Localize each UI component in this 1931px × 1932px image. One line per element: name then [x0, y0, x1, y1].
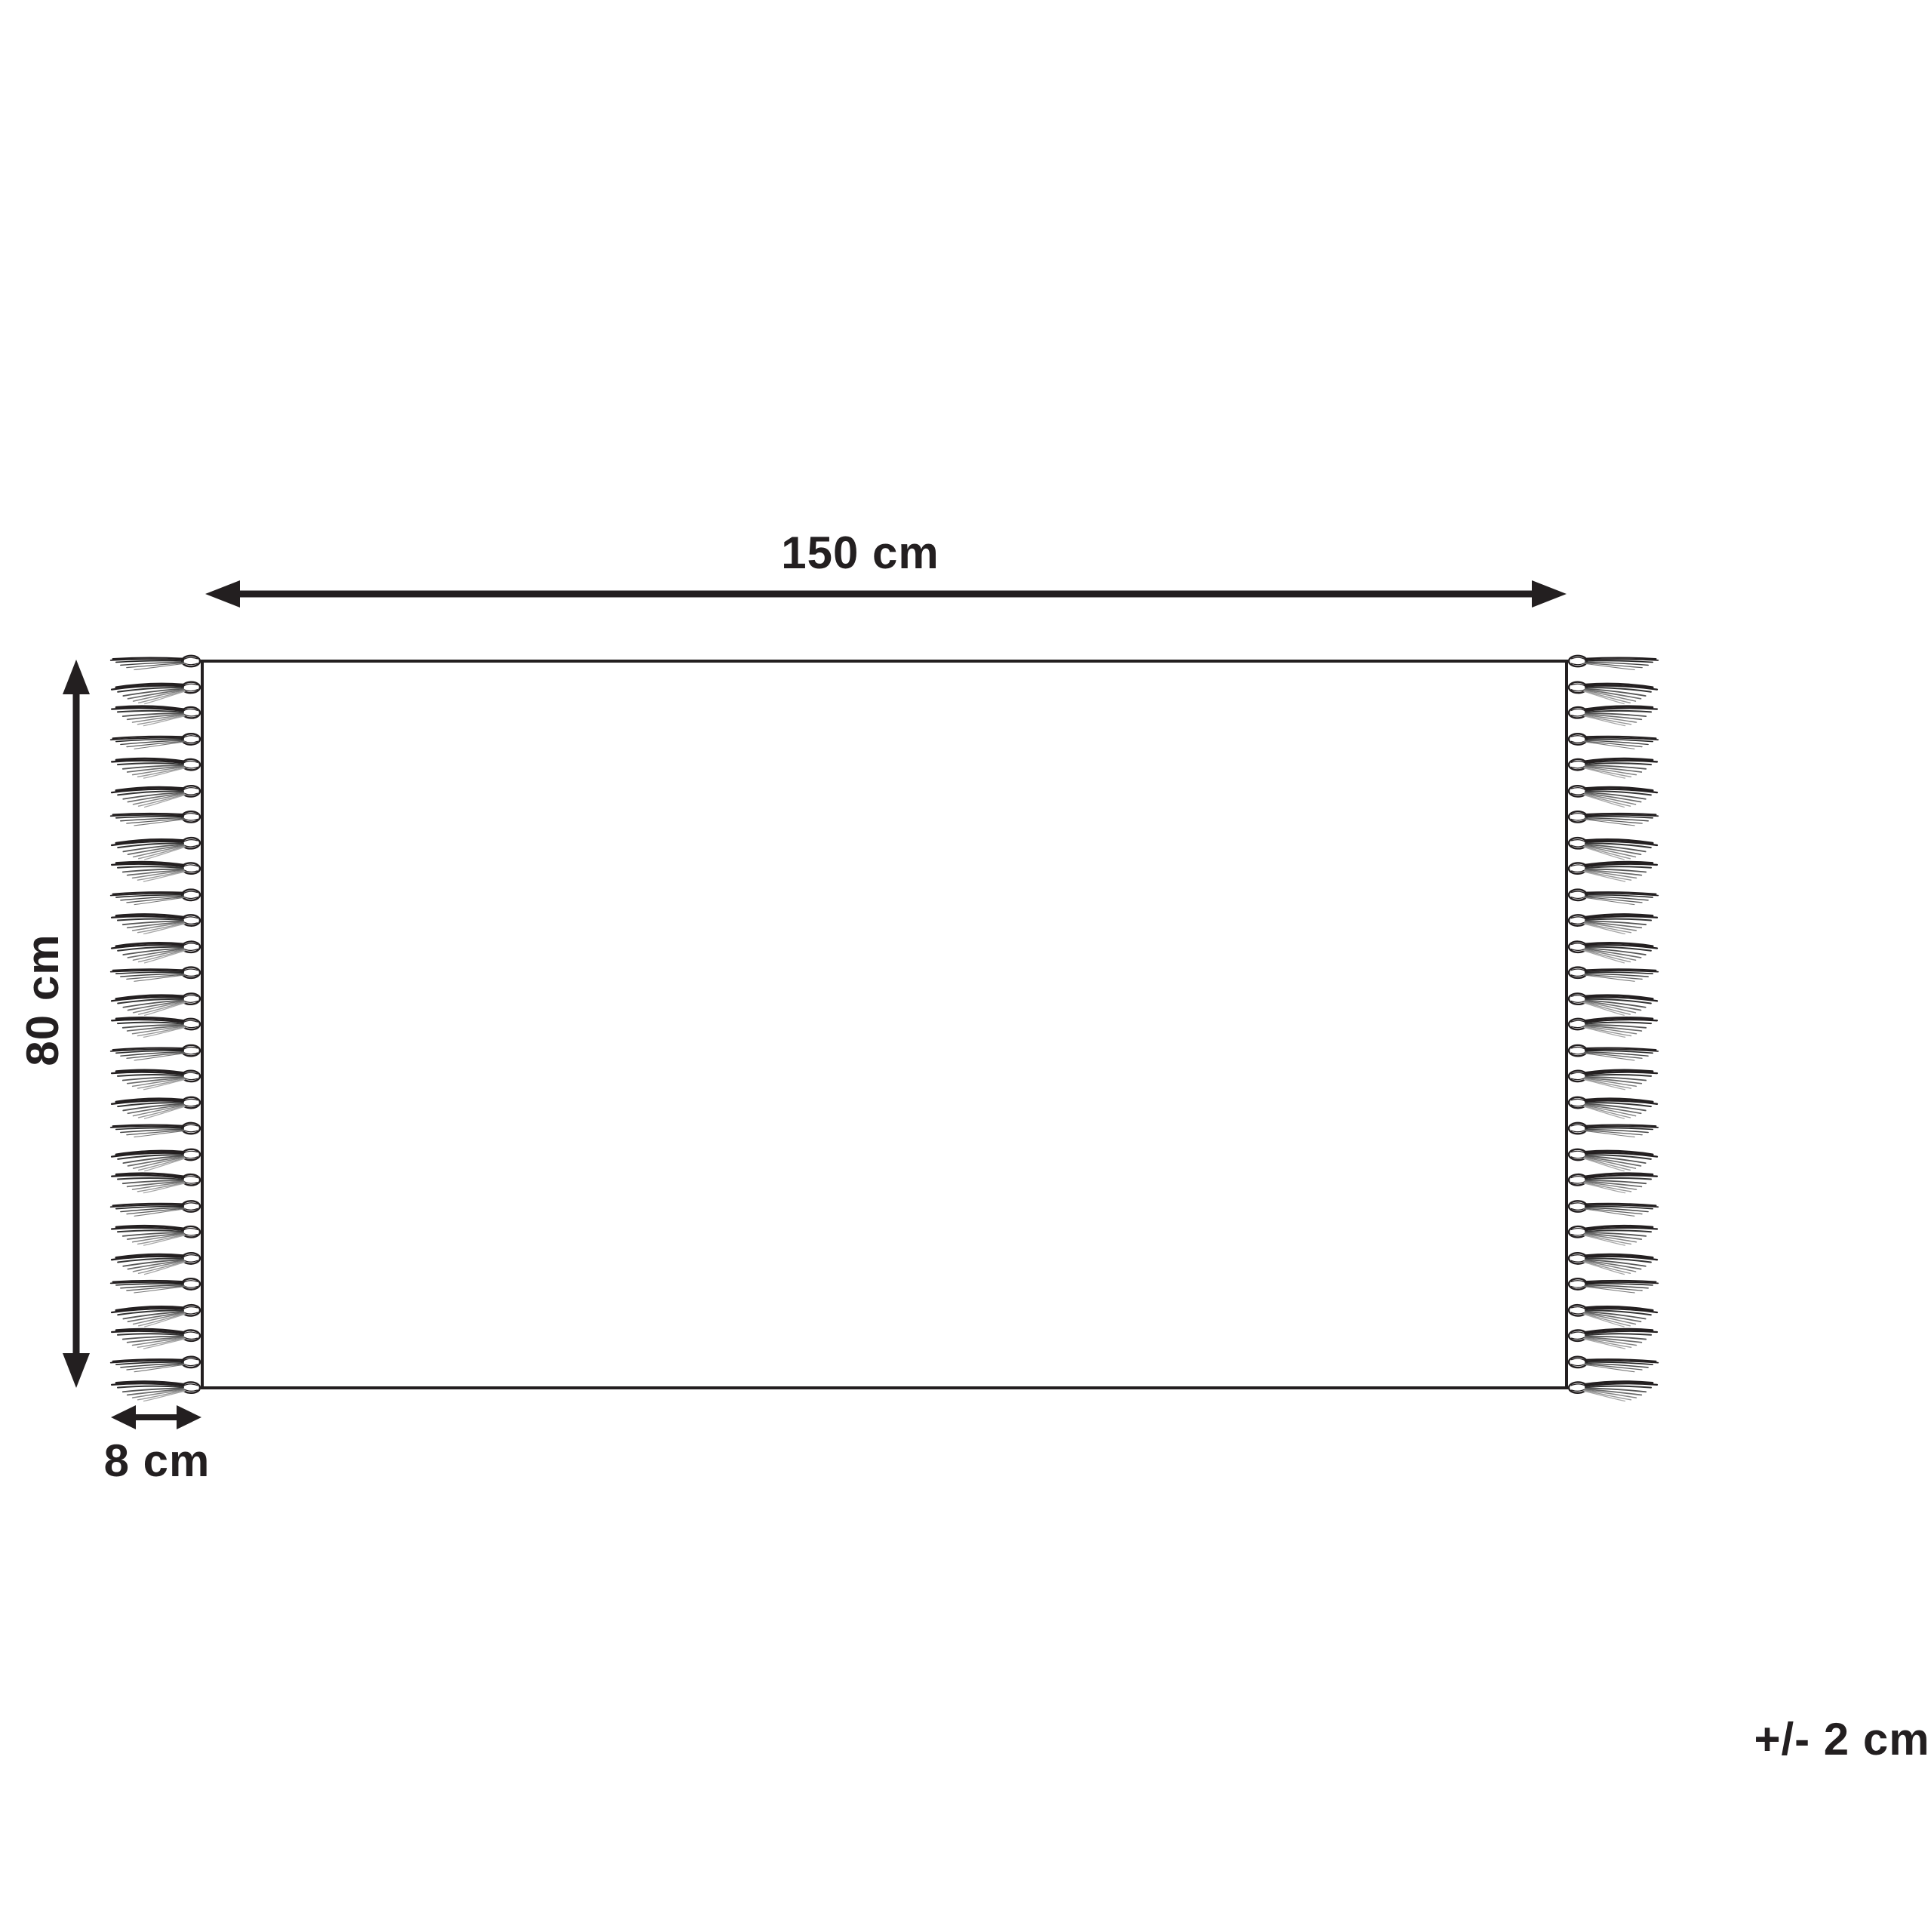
tassel — [112, 1149, 203, 1172]
tassel — [111, 734, 202, 749]
tassel — [1567, 1327, 1658, 1351]
tassel — [1567, 811, 1658, 826]
tassel — [111, 968, 202, 982]
tassel — [112, 1380, 203, 1403]
tassel — [1567, 1016, 1658, 1039]
tassel — [112, 1069, 203, 1091]
tassel — [1567, 1171, 1658, 1195]
tassel — [1567, 913, 1658, 936]
tassel — [111, 889, 202, 905]
fringe-dimension-arrow — [111, 1405, 201, 1429]
tassel — [1566, 993, 1657, 1017]
tassel — [111, 1356, 202, 1372]
tassel — [1567, 1069, 1658, 1091]
left-fringe — [111, 656, 203, 1403]
tassel — [112, 1097, 203, 1119]
tassel — [1567, 1380, 1658, 1403]
tassel — [112, 1224, 203, 1247]
rug-dimension-diagram: 150 cm 80 cm 8 cm +/- 2 cm — [0, 0, 1931, 1932]
tassel — [1567, 1123, 1658, 1137]
tassel — [112, 941, 203, 964]
tassel — [1567, 1278, 1658, 1293]
tassel — [112, 757, 203, 780]
tassel — [1566, 1305, 1657, 1328]
tassel — [112, 1253, 203, 1275]
tassel — [1567, 1045, 1658, 1061]
tassel — [1567, 1201, 1658, 1217]
tassel — [1567, 656, 1658, 670]
tassel — [1567, 734, 1658, 749]
tassel — [112, 786, 203, 808]
tassel — [1566, 838, 1657, 861]
right-fringe — [1566, 656, 1658, 1403]
tassel — [111, 1327, 202, 1351]
fringe-dimension-label: 8 cm — [104, 1438, 211, 1484]
tassel — [1567, 860, 1658, 884]
tassel — [112, 913, 203, 936]
tassel — [111, 860, 202, 884]
tassel — [111, 1201, 202, 1217]
tassel — [111, 656, 202, 670]
height-dimension-label: 80 cm — [20, 934, 66, 1066]
tassel — [112, 993, 203, 1017]
width-dimension-label: 150 cm — [781, 531, 939, 576]
tassel — [111, 1123, 202, 1137]
tassel — [1567, 704, 1658, 728]
tassel — [111, 704, 202, 728]
tassel — [111, 1016, 202, 1039]
tassel — [1566, 786, 1657, 808]
tassel — [1566, 1149, 1657, 1172]
width-dimension-arrow — [205, 580, 1567, 608]
tassel — [1567, 1356, 1658, 1372]
tassel — [111, 1045, 202, 1061]
tassel — [112, 838, 203, 861]
tassel — [1566, 681, 1657, 705]
tassel — [111, 1278, 202, 1293]
tassel — [111, 1171, 202, 1195]
tolerance-label: +/- 2 cm — [1754, 1717, 1929, 1762]
tassel — [1567, 1224, 1658, 1247]
rug-outline — [202, 661, 1567, 1388]
tassel — [1566, 1097, 1657, 1119]
tassel — [1567, 757, 1658, 780]
tassel — [1566, 1253, 1657, 1275]
tassel — [1567, 889, 1658, 905]
tassel — [111, 811, 202, 826]
tassel — [1566, 941, 1657, 964]
tassel — [112, 1305, 203, 1328]
tassel — [112, 681, 203, 705]
tassel — [1567, 968, 1658, 982]
diagram-drawing — [0, 0, 1931, 1932]
